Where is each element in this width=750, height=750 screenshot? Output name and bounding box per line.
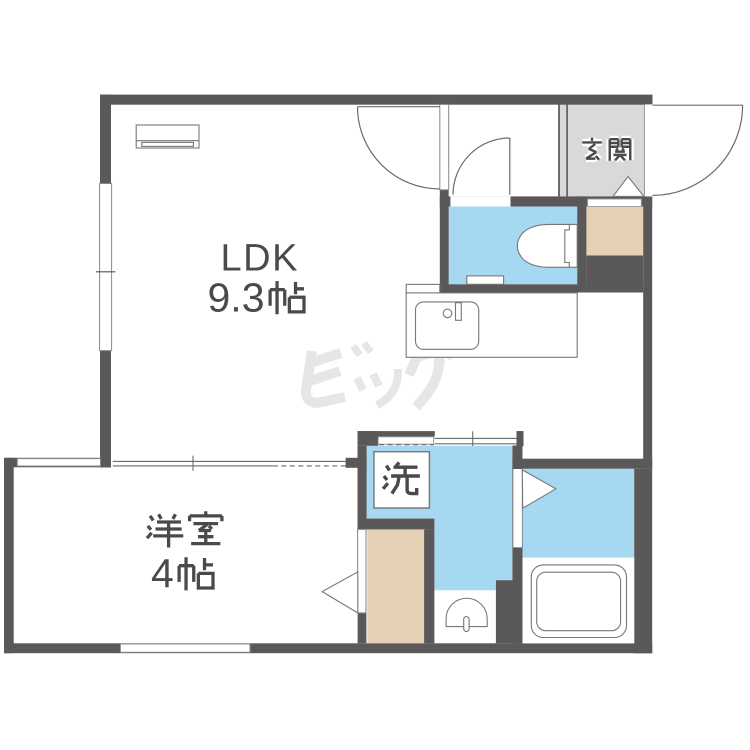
svg-text:LDK: LDK [221,238,299,280]
svg-text:9.3: 9.3 [208,275,265,321]
svg-text:4: 4 [151,550,174,596]
